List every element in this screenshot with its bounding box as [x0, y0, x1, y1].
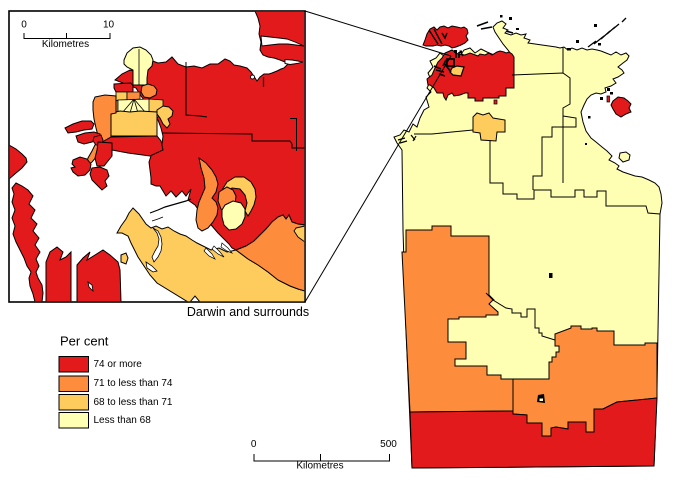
svg-text:0: 0 [21, 20, 27, 31]
svg-text:Kilometres: Kilometres [296, 461, 343, 472]
svg-text:Darwin and surrounds: Darwin and surrounds [187, 305, 309, 319]
svg-text:Kilometres: Kilometres [42, 39, 89, 50]
svg-text:68 to less than 71: 68 to less than 71 [94, 397, 173, 408]
svg-text:71 to less than 74: 71 to less than 74 [94, 378, 173, 389]
svg-text:74 or more: 74 or more [94, 359, 143, 370]
svg-text:Less than 68: Less than 68 [94, 415, 152, 426]
svg-text:10: 10 [103, 20, 115, 31]
svg-text:0: 0 [251, 439, 257, 450]
svg-text:Per cent: Per cent [60, 334, 109, 349]
svg-text:500: 500 [380, 439, 397, 450]
